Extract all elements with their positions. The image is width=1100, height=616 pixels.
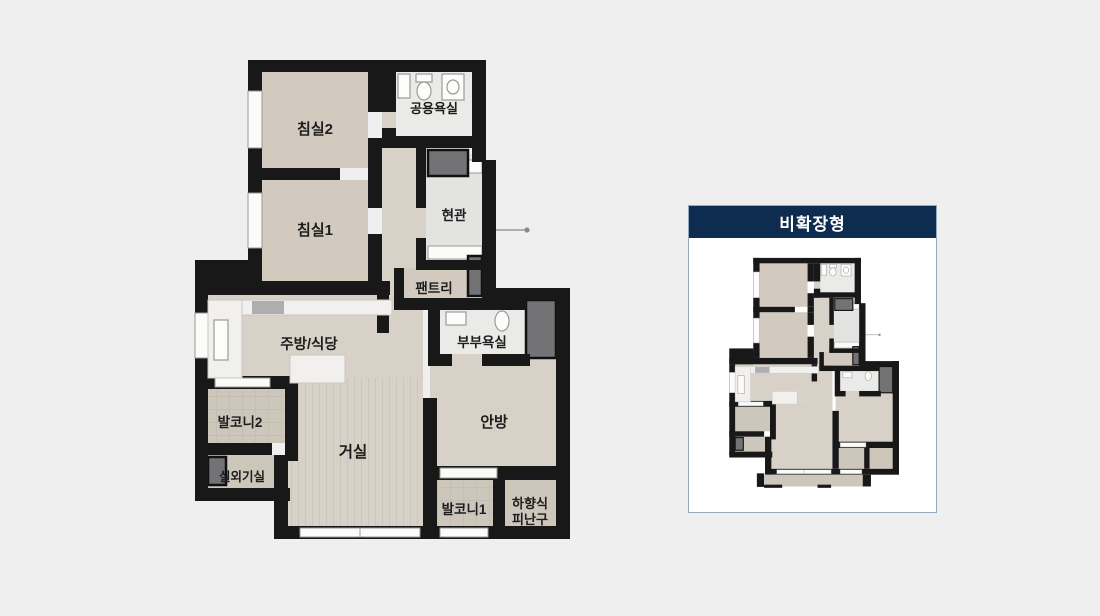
- master-bedroom-label: 안방: [480, 413, 508, 431]
- basin-icon: [843, 267, 848, 273]
- bedroom2-floor: [262, 72, 368, 168]
- sink-icon: [214, 320, 228, 360]
- kitchen-window: [729, 373, 735, 393]
- door-leader: [496, 227, 530, 232]
- pantry-label: 팬트리: [415, 281, 452, 296]
- door-leader: [865, 334, 880, 336]
- master-basin-icon: [446, 312, 466, 325]
- living-floor: [770, 402, 832, 469]
- ac-room-label: 실외기실: [219, 469, 265, 484]
- balcony1-label: 발코니1: [442, 501, 487, 517]
- master-toilet-icon: [865, 372, 871, 381]
- bedroom2-window: [248, 91, 262, 148]
- type-panel[interactable]: 비확장형: [688, 205, 937, 513]
- master-balcony-door: [440, 468, 497, 478]
- bedroom2-floor: [759, 263, 807, 306]
- basin-icon: [447, 80, 459, 94]
- mini-plan-container: [727, 257, 899, 489]
- duct-right-of-master-bath: [879, 367, 893, 393]
- kitchen-island: [772, 392, 797, 405]
- type-panel-body: [689, 238, 936, 512]
- main-floorplan: 침실2 공용욕실 현관 침실1 팬트리 주방/식당 부부욕실 발코니2 거실 안…: [190, 58, 570, 542]
- toilet-icon: [829, 268, 835, 276]
- duct-right-of-master-bath: [526, 300, 556, 358]
- pantry-floor: [822, 352, 853, 366]
- shower-icon: [398, 74, 410, 98]
- duct-below-bath: [834, 299, 852, 311]
- sink-icon: [737, 376, 743, 394]
- kitchen-window: [195, 313, 208, 358]
- bedroom2-window: [753, 272, 759, 298]
- stove-icon: [755, 367, 769, 373]
- kitchen-island: [290, 355, 345, 383]
- toilet-cistern-icon: [416, 74, 432, 82]
- door-leader-dot: [524, 227, 529, 232]
- bedroom1-label: 침실1: [297, 222, 333, 239]
- balcony1-floor: [838, 448, 863, 469]
- evac-hatch-label-line1: 하향식: [512, 496, 548, 511]
- mini-balcony-strip: [756, 473, 870, 487]
- living-label: 거실: [339, 443, 368, 461]
- bedroom1-window: [248, 193, 262, 248]
- balcony1-window: [440, 528, 488, 537]
- shower-icon: [821, 264, 826, 275]
- balcony1-window: [840, 470, 862, 474]
- toilet-cistern-icon: [829, 264, 836, 268]
- balcony2-label: 발코니2: [218, 414, 263, 430]
- duct-below-bath: [428, 150, 468, 176]
- evac-hatch-label-line2: 피난구: [512, 512, 548, 527]
- type-panel-title: 비확장형: [779, 210, 846, 235]
- door-leader-dot: [878, 334, 880, 336]
- entrance-label: 현관: [442, 207, 467, 223]
- kitchen-dining-label: 주방/식당: [280, 335, 338, 353]
- balcony2-door: [215, 378, 270, 387]
- balcony2-floor: [735, 407, 770, 431]
- bedroom1-floor: [759, 312, 807, 358]
- master-bath-label: 부부욕실: [457, 335, 507, 350]
- toilet-icon: [417, 82, 431, 100]
- bedroom2-label: 침실2: [297, 121, 333, 138]
- duct-ac-room: [735, 438, 743, 451]
- floorplan-svg: 침실2 공용욕실 현관 침실1 팬트리 주방/식당 부부욕실 발코니2 거실 안…: [190, 58, 570, 542]
- page-background: 침실2 공용욕실 현관 침실1 팬트리 주방/식당 부부욕실 발코니2 거실 안…: [0, 0, 1100, 616]
- evac-hatch-floor: [869, 448, 892, 469]
- type-panel-header[interactable]: 비확장형: [689, 206, 936, 238]
- master-basin-icon: [842, 372, 851, 378]
- master-toilet-icon: [495, 311, 509, 331]
- master-balcony-door: [840, 443, 866, 448]
- stove-icon: [252, 301, 284, 314]
- mini-floorplan-svg: [727, 257, 899, 489]
- balcony2-door: [738, 402, 763, 406]
- common-bath-label: 공용욕실: [410, 101, 458, 116]
- bedroom1-window: [753, 318, 759, 343]
